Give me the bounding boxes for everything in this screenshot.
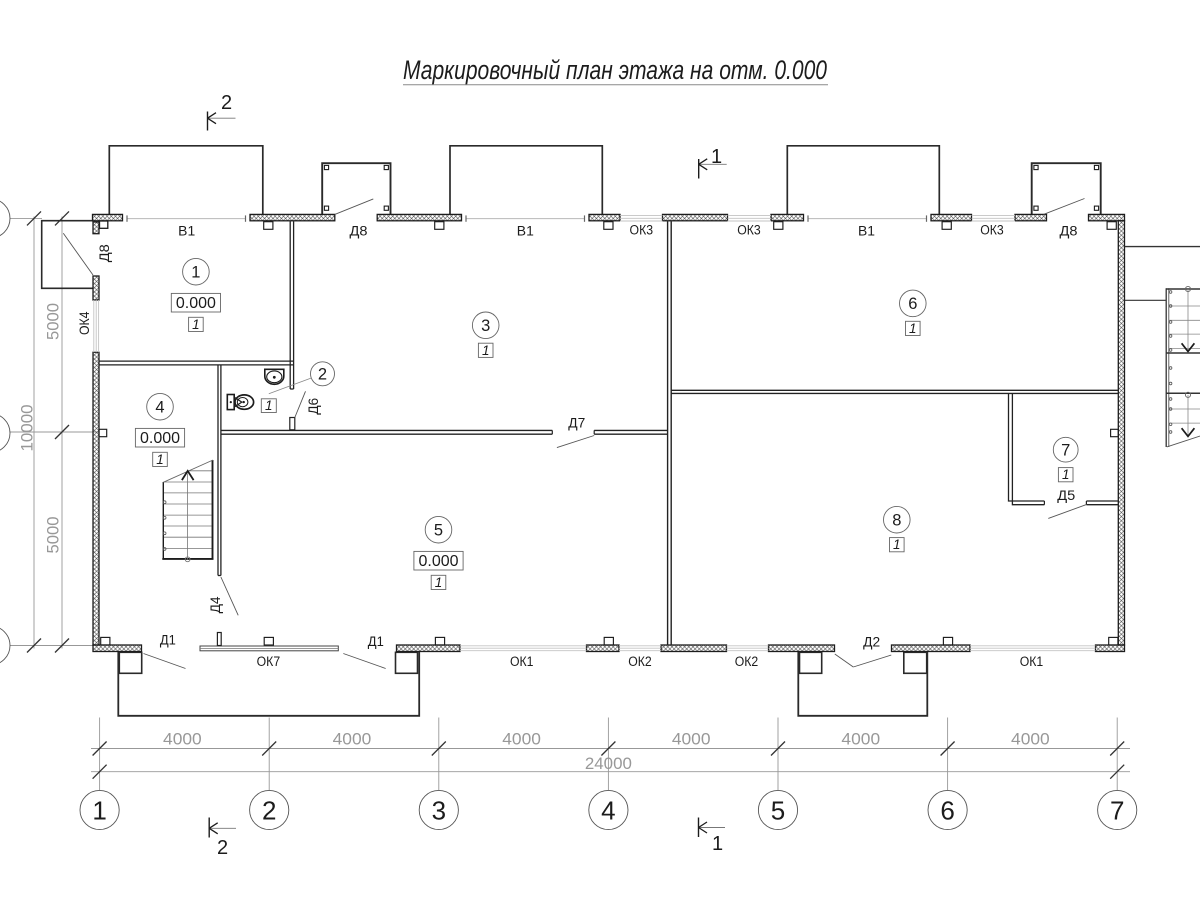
svg-text:5000: 5000 [45, 303, 63, 340]
svg-text:2: 2 [221, 92, 232, 114]
svg-text:0.000: 0.000 [176, 295, 216, 312]
svg-text:4000: 4000 [502, 731, 541, 749]
svg-text:1: 1 [156, 452, 164, 467]
svg-text:7: 7 [1061, 442, 1070, 460]
svg-text:24000: 24000 [585, 755, 632, 773]
svg-text:4000: 4000 [1011, 731, 1050, 749]
svg-text:2: 2 [262, 796, 276, 826]
svg-text:1: 1 [909, 321, 917, 336]
svg-text:1: 1 [92, 796, 106, 826]
svg-text:1: 1 [1062, 467, 1070, 482]
svg-text:ОК1: ОК1 [1020, 654, 1044, 669]
svg-text:Д4: Д4 [208, 596, 223, 613]
svg-text:1: 1 [711, 146, 722, 168]
svg-text:6: 6 [940, 796, 954, 826]
svg-text:5: 5 [434, 522, 443, 540]
svg-text:1: 1 [893, 537, 901, 552]
svg-text:1: 1 [712, 833, 723, 855]
svg-text:Д1: Д1 [160, 633, 176, 648]
svg-text:5000: 5000 [45, 517, 63, 554]
svg-text:1: 1 [482, 343, 490, 358]
svg-text:7: 7 [1110, 796, 1124, 826]
svg-text:0.000: 0.000 [140, 430, 180, 447]
svg-text:2: 2 [217, 837, 228, 859]
svg-text:В1: В1 [858, 224, 875, 239]
svg-text:ОК2: ОК2 [628, 654, 652, 669]
svg-text:Д8: Д8 [1060, 224, 1078, 239]
svg-text:2: 2 [318, 366, 327, 384]
svg-text:В1: В1 [178, 224, 195, 239]
svg-text:ОК3: ОК3 [737, 223, 761, 238]
svg-text:В1: В1 [517, 224, 534, 239]
svg-text:Маркировочный план этажа на от: Маркировочный план этажа на отм. 0.000 [403, 55, 827, 85]
svg-text:1: 1 [191, 264, 200, 282]
svg-text:ОК4: ОК4 [77, 311, 92, 335]
svg-text:ОК3: ОК3 [980, 223, 1004, 238]
svg-text:4000: 4000 [163, 731, 202, 749]
svg-text:Д8: Д8 [350, 224, 368, 239]
svg-text:5: 5 [771, 796, 785, 826]
svg-text:ОК1: ОК1 [510, 654, 534, 669]
svg-text:Д8: Д8 [97, 244, 112, 262]
svg-text:4: 4 [155, 399, 164, 417]
svg-text:1: 1 [435, 575, 443, 590]
svg-text:4000: 4000 [333, 731, 372, 749]
svg-text:Д2: Д2 [863, 635, 880, 650]
svg-text:10000: 10000 [19, 405, 37, 452]
svg-text:3: 3 [432, 796, 446, 826]
svg-text:8: 8 [892, 512, 901, 530]
svg-text:3: 3 [481, 317, 490, 335]
svg-text:ОК3: ОК3 [630, 223, 654, 238]
svg-text:ОК2: ОК2 [735, 654, 759, 669]
svg-text:4000: 4000 [841, 731, 880, 749]
svg-text:6: 6 [908, 295, 917, 313]
svg-text:Д6: Д6 [306, 398, 321, 415]
svg-text:1: 1 [192, 317, 200, 332]
svg-text:Д5: Д5 [1057, 488, 1075, 503]
svg-text:4: 4 [601, 796, 615, 826]
svg-text:Д1: Д1 [368, 634, 384, 649]
svg-text:ОК7: ОК7 [257, 654, 281, 669]
svg-text:1: 1 [265, 398, 273, 413]
svg-text:Д7: Д7 [568, 416, 585, 431]
svg-text:0.000: 0.000 [418, 553, 458, 570]
svg-text:4000: 4000 [672, 731, 711, 749]
